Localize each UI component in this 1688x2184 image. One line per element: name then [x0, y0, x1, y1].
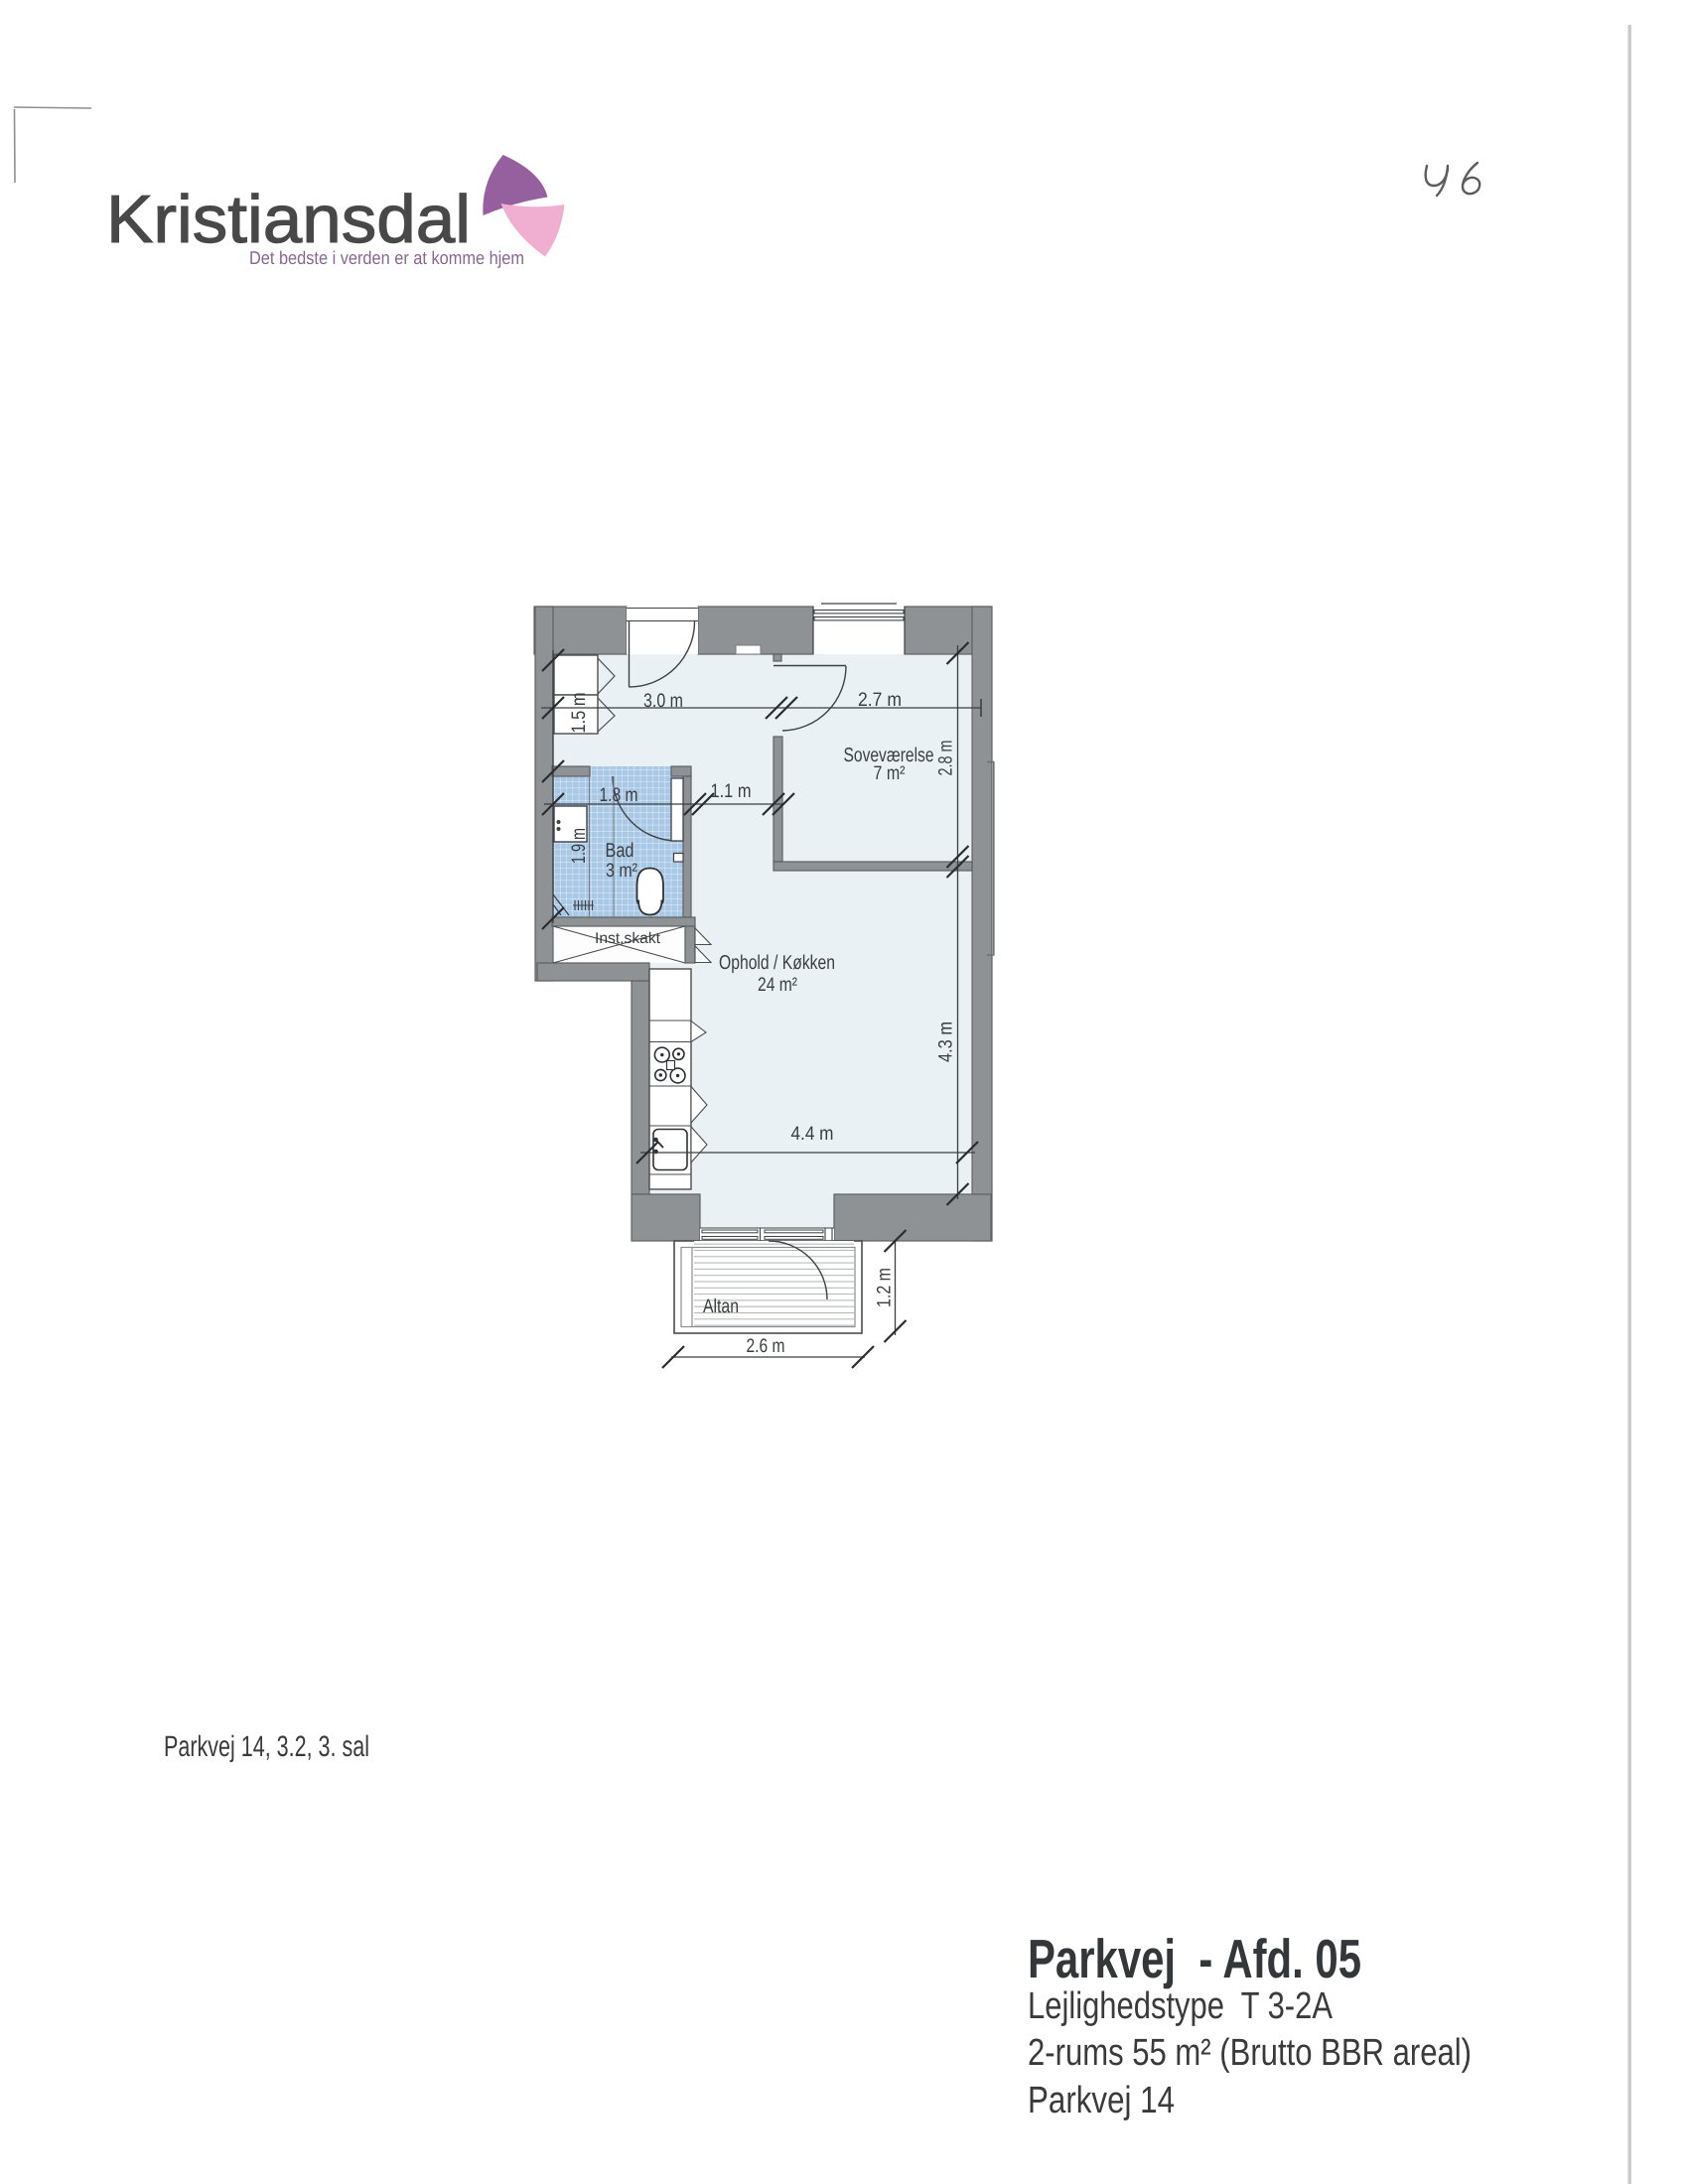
svg-text:Parkvej 14: Parkvej 14	[1028, 2080, 1175, 2121]
svg-text:Parkvej 14, 3.2, 3. sal: Parkvej 14, 3.2, 3. sal	[164, 1730, 369, 1763]
svg-text:1.1 m: 1.1 m	[711, 780, 752, 802]
svg-text:1.8 m: 1.8 m	[600, 784, 638, 806]
svg-text:1.9 m: 1.9 m	[568, 828, 590, 864]
svg-text:1.5 m: 1.5 m	[568, 693, 590, 734]
svg-text:1.2 m: 1.2 m	[874, 1268, 896, 1307]
svg-text:Ophold / Køkken: Ophold / Køkken	[719, 952, 835, 974]
svg-text:3 m²: 3 m²	[606, 860, 637, 882]
svg-text:3.0 m: 3.0 m	[643, 690, 683, 712]
svg-text:Kristiansdal: Kristiansdal	[106, 182, 471, 257]
svg-text:Bad: Bad	[606, 840, 634, 862]
svg-text:2.7 m: 2.7 m	[858, 689, 902, 711]
svg-text:Det bedste i verden er at komm: Det bedste i verden er at komme hjem	[249, 247, 524, 268]
svg-text:4.4 m: 4.4 m	[791, 1123, 834, 1145]
svg-text:Parkvej - Afd. 05: Parkvej - Afd. 05	[1028, 1928, 1361, 1989]
svg-text:Inst.skakt: Inst.skakt	[595, 930, 661, 947]
svg-text:2.6 m: 2.6 m	[747, 1335, 785, 1357]
svg-text:2.8 m: 2.8 m	[935, 741, 957, 776]
svg-text:4.3 m: 4.3 m	[935, 1022, 957, 1062]
svg-text:7 m²: 7 m²	[874, 762, 906, 784]
svg-text:Lejlighedstype T 3-2A: Lejlighedstype T 3-2A	[1028, 1985, 1334, 2027]
svg-text:Altan: Altan	[703, 1296, 739, 1317]
svg-text:24 m²: 24 m²	[758, 974, 797, 996]
svg-text:2-rums 55 m² (Brutto BBR areal: 2-rums 55 m² (Brutto BBR areal)	[1028, 2032, 1472, 2074]
